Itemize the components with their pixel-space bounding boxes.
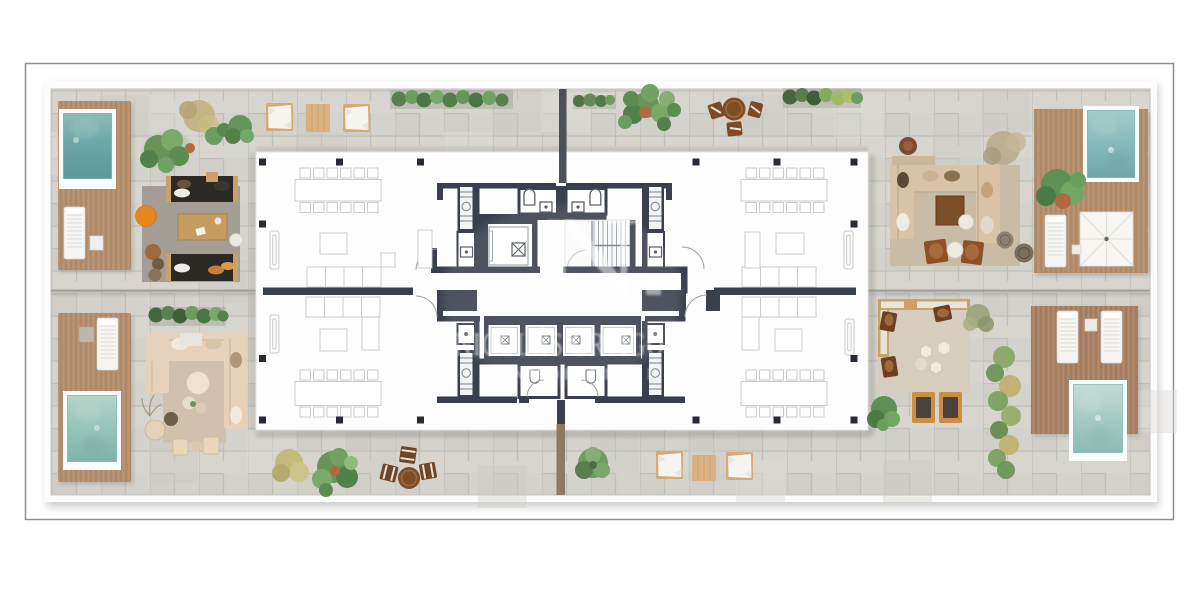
svg-text:N: N: [543, 194, 642, 322]
svg-text:INMOBILIARI: INMOBILIARI: [502, 366, 660, 383]
svg-text:NICOLÁS ORTIGÓ: NICOLÁS ORTIGÓ: [455, 325, 665, 363]
